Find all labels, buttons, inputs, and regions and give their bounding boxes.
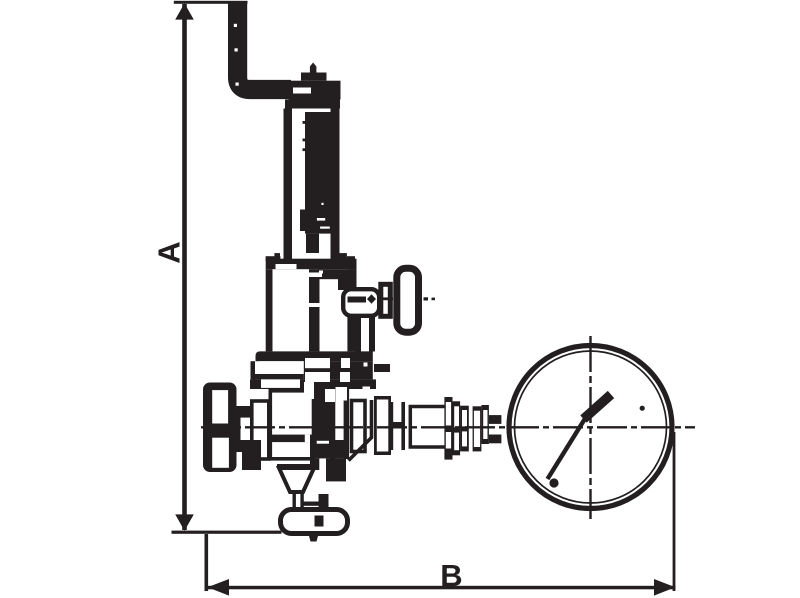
svg-text:A: A: [152, 241, 187, 263]
svg-text:B: B: [440, 558, 462, 593]
